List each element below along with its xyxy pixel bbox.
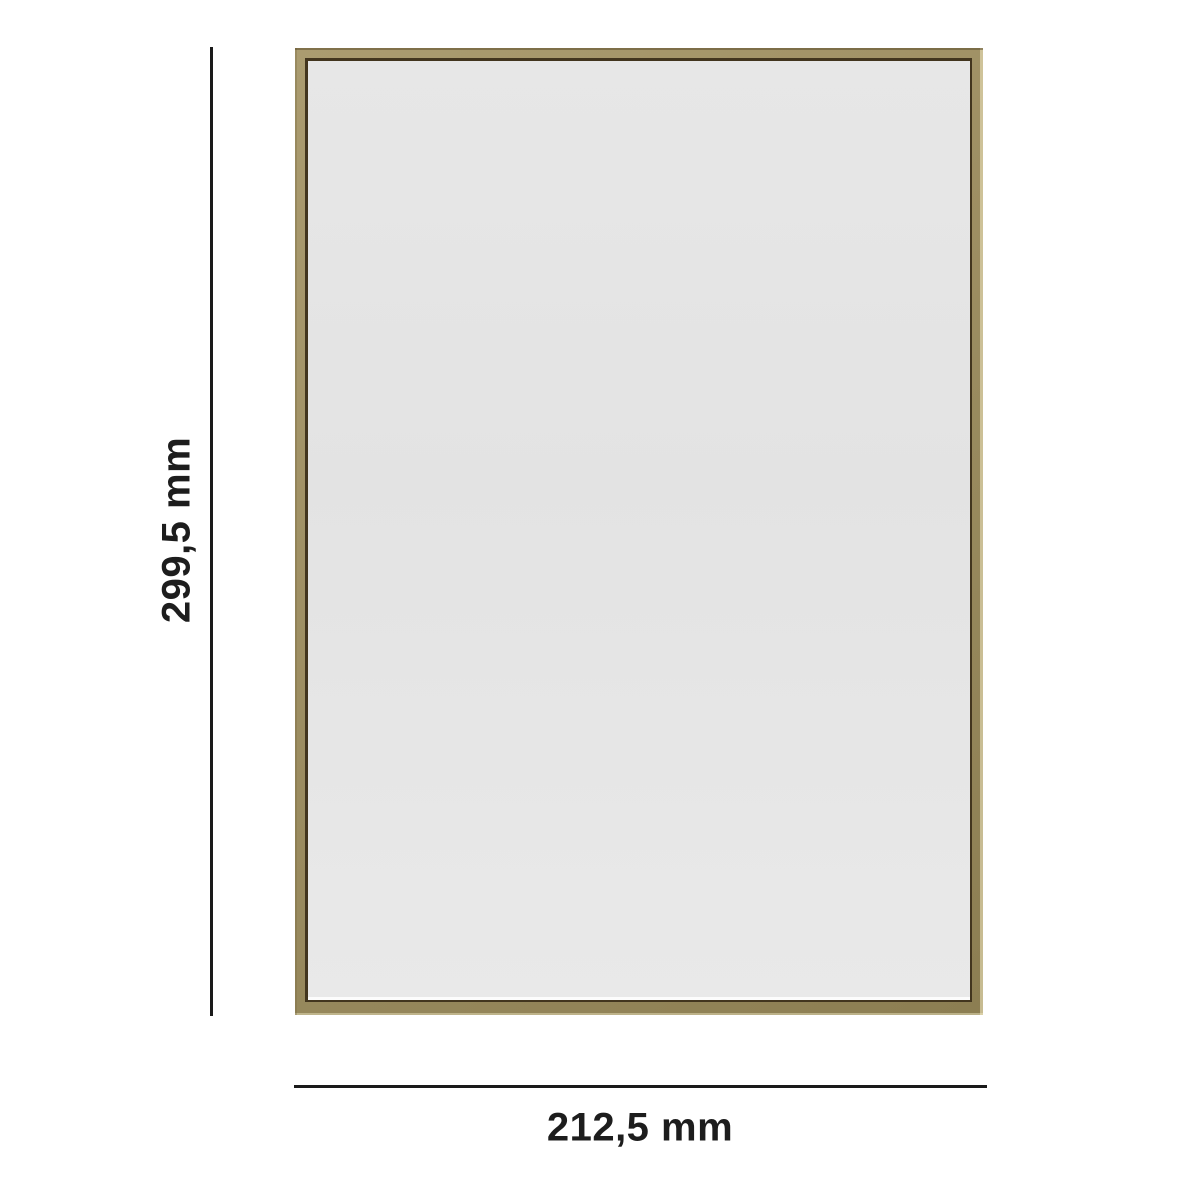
product-dimension-diagram: 299,5 mm 212,5 mm [0,0,1200,1200]
picture-frame [295,48,983,1015]
height-dimension-label: 299,5 mm [155,437,200,623]
width-dimension-line [294,1085,987,1088]
height-dimension-line [210,47,213,1016]
frame-mat [305,58,972,1002]
width-dimension-label: 212,5 mm [547,1106,733,1151]
